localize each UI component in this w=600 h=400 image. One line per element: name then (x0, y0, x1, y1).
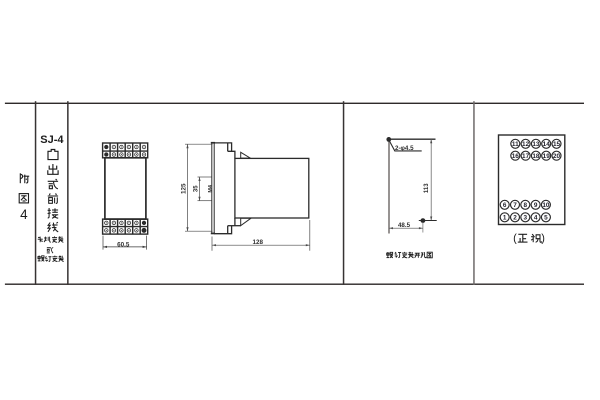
svg-text:7: 7 (513, 202, 517, 209)
svg-text:12: 12 (522, 141, 530, 148)
svg-text:SJ-4: SJ-4 (40, 134, 64, 146)
svg-text:125: 125 (180, 183, 187, 194)
svg-text:4: 4 (20, 207, 28, 222)
svg-text:18: 18 (532, 153, 540, 160)
svg-text:6: 6 (503, 202, 507, 209)
svg-text:M4: M4 (208, 184, 214, 193)
svg-text:19: 19 (543, 153, 551, 160)
svg-text:17: 17 (522, 153, 530, 160)
svg-text:1: 1 (503, 215, 507, 222)
svg-text:113: 113 (424, 183, 430, 193)
svg-text:2: 2 (513, 215, 517, 222)
svg-text:13: 13 (532, 141, 540, 148)
svg-text:3: 3 (524, 215, 528, 222)
svg-text:60.5: 60.5 (117, 241, 130, 248)
svg-text:9: 9 (534, 202, 538, 209)
svg-text:4: 4 (534, 215, 538, 222)
svg-text:5: 5 (544, 215, 548, 222)
svg-text:11: 11 (512, 141, 519, 148)
svg-text:(: ( (513, 232, 517, 244)
svg-text:35: 35 (194, 185, 200, 192)
svg-text:15: 15 (553, 141, 561, 148)
svg-text:20: 20 (553, 153, 561, 160)
svg-text:14: 14 (543, 141, 551, 148)
svg-text:48.5: 48.5 (398, 222, 411, 229)
svg-text:): ) (541, 232, 545, 244)
svg-text:10: 10 (542, 202, 550, 209)
svg-text:16: 16 (512, 153, 520, 160)
svg-text:2-φ4.5: 2-φ4.5 (395, 145, 414, 152)
svg-text:128: 128 (253, 239, 264, 246)
svg-text:8: 8 (524, 202, 528, 209)
